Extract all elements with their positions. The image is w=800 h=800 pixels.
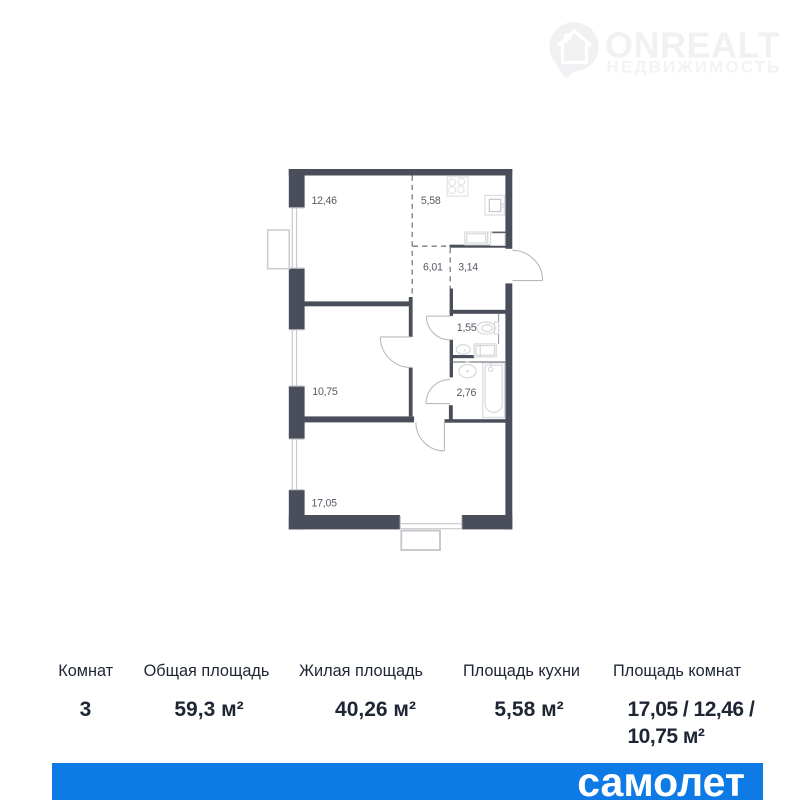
- svg-text:1,55: 1,55: [457, 322, 477, 334]
- svg-text:НЕДВИЖИМОСТЬ: НЕДВИЖИМОСТЬ: [607, 58, 782, 77]
- svg-text:2,76: 2,76: [457, 387, 477, 399]
- svg-text:3,14: 3,14: [458, 262, 478, 274]
- svg-text:10,75: 10,75: [312, 386, 338, 398]
- svg-text:17,05: 17,05: [312, 497, 338, 509]
- svg-text:6,01: 6,01: [423, 262, 443, 274]
- svg-text:12,46: 12,46: [312, 195, 338, 207]
- svg-text:5,58: 5,58: [421, 195, 441, 207]
